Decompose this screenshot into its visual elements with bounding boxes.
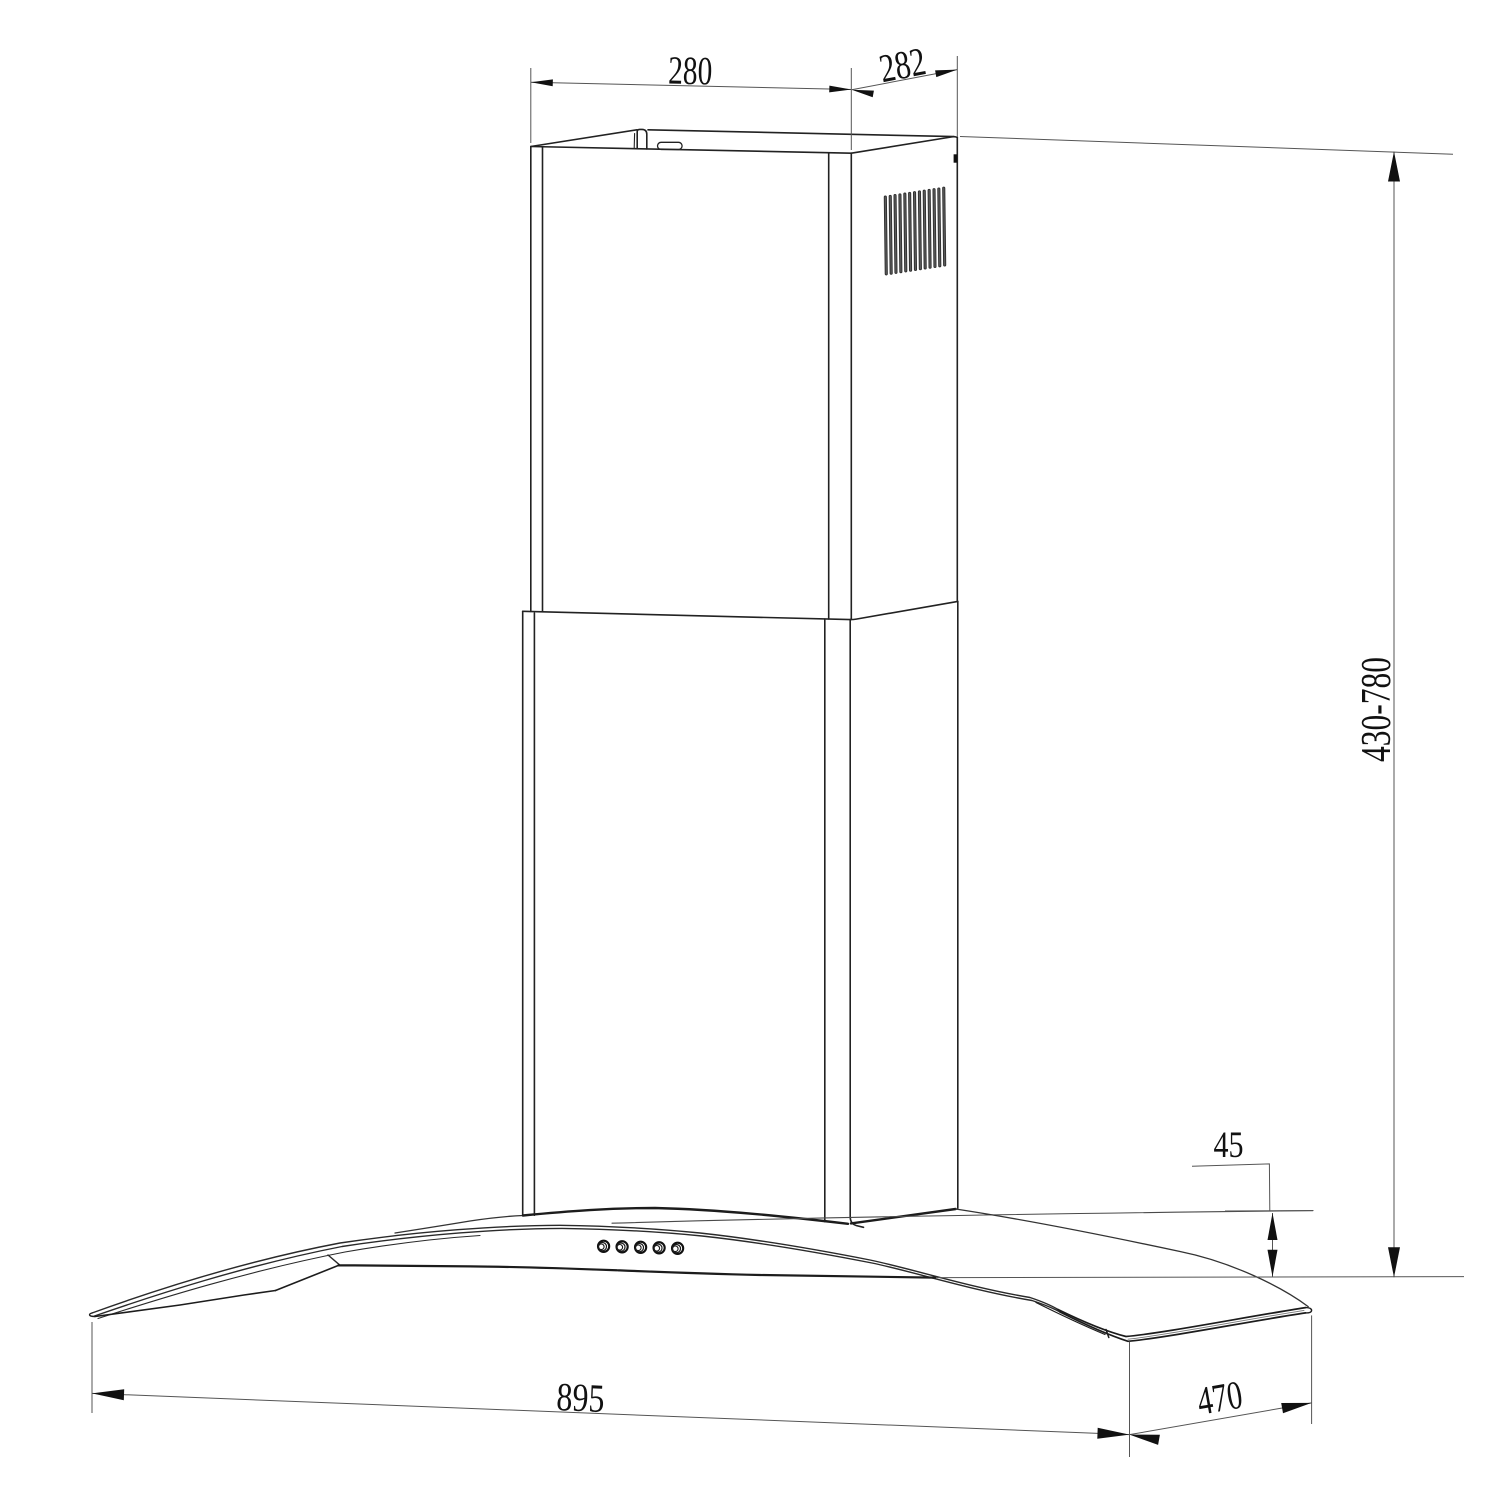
svg-text:430-780: 430-780 <box>1354 657 1400 762</box>
svg-text:45: 45 <box>1214 1125 1244 1166</box>
svg-text:280: 280 <box>668 48 713 94</box>
svg-text:895: 895 <box>556 1374 606 1421</box>
svg-text:282: 282 <box>876 38 930 91</box>
svg-text:470: 470 <box>1194 1372 1246 1424</box>
